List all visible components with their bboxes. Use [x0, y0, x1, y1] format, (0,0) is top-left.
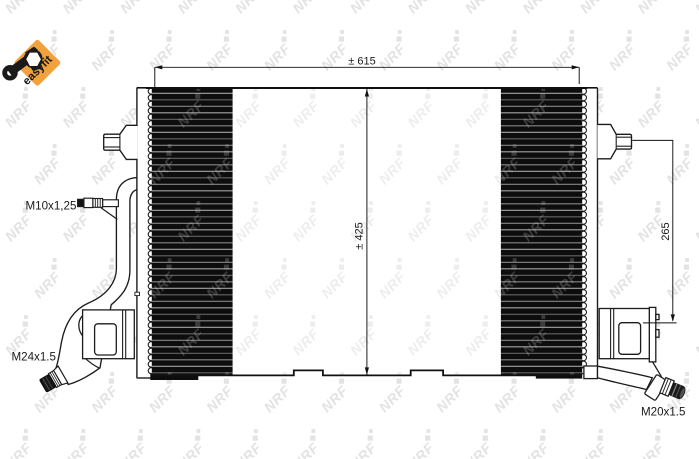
svg-text:265: 265	[660, 222, 672, 240]
svg-text:M20x1.5: M20x1.5	[641, 406, 685, 419]
svg-text:M24x1.5: M24x1.5	[12, 351, 56, 364]
svg-text:± 615: ± 615	[348, 56, 375, 68]
svg-text:± 425: ± 425	[353, 222, 365, 249]
svg-text:M10x1,25: M10x1,25	[26, 200, 77, 213]
